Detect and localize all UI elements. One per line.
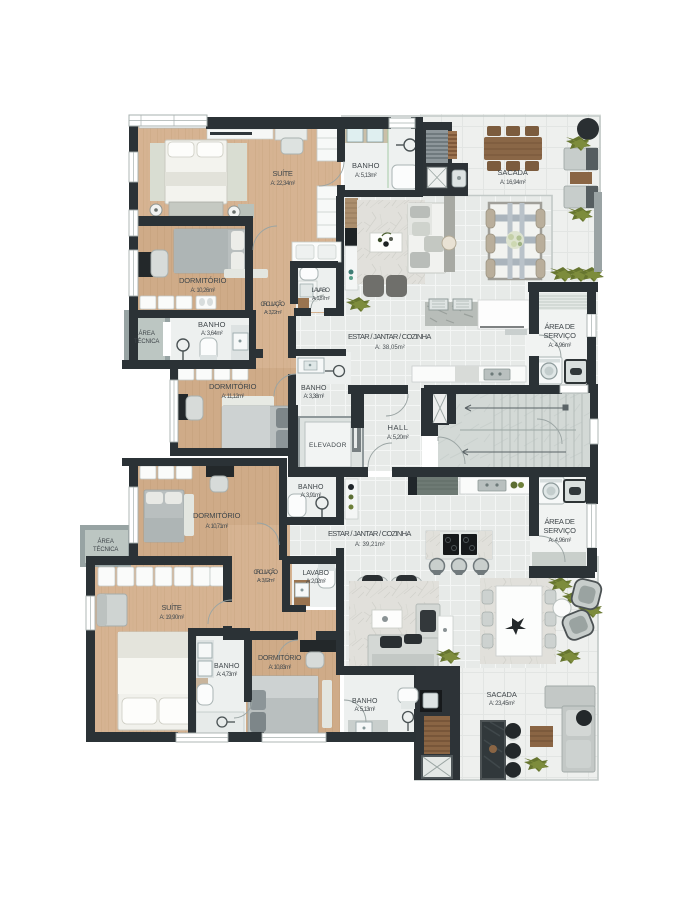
svg-text:A: 39,21m²: A: 39,21m² — [355, 542, 385, 548]
svg-text:A: 19,90m²: A: 19,90m² — [160, 615, 185, 621]
svg-text:SUÍTE: SUÍTE — [273, 169, 294, 178]
svg-text:A: 3,64m²: A: 3,64m² — [201, 331, 223, 337]
svg-text:A: 5,13m²: A: 5,13m² — [355, 707, 376, 713]
svg-text:BANHO: BANHO — [352, 161, 380, 170]
svg-text:A: 3,62m²: A: 3,62m² — [257, 578, 275, 584]
svg-text:CIRCULAÇÃO: CIRCULAÇÃO — [254, 569, 279, 576]
svg-text:SACADA: SACADA — [498, 168, 529, 177]
svg-text:TÉCNICA: TÉCNICA — [134, 338, 160, 345]
svg-text:ESTAR / JANTAR / COZINHA: ESTAR / JANTAR / COZINHA — [328, 529, 412, 538]
svg-text:BANHO: BANHO — [198, 320, 226, 329]
svg-text:A: 5,13m²: A: 5,13m² — [355, 173, 377, 179]
svg-text:HALL: HALL — [388, 423, 409, 432]
svg-text:A: 3,38m²: A: 3,38m² — [304, 394, 325, 400]
svg-text:BANHO: BANHO — [298, 484, 324, 491]
svg-text:DORMITÓRIO: DORMITÓRIO — [209, 382, 257, 391]
svg-text:DORMITÓRIO: DORMITÓRIO — [193, 511, 241, 520]
svg-text:A: 11,12m²: A: 11,12m² — [222, 394, 245, 400]
svg-text:DORMITÓRIO: DORMITÓRIO — [258, 653, 302, 662]
svg-text:TÉCNICA: TÉCNICA — [93, 546, 119, 553]
svg-text:SERVIÇO: SERVIÇO — [544, 331, 577, 340]
svg-text:A: 2,02m²: A: 2,02m² — [306, 579, 326, 585]
svg-text:ÁREA DE: ÁREA DE — [545, 322, 576, 331]
svg-text:A: 10,26m²: A: 10,26m² — [191, 288, 216, 294]
svg-text:A: 5,20m²: A: 5,20m² — [387, 435, 409, 441]
svg-text:A: 22,34m²: A: 22,34m² — [271, 181, 296, 187]
svg-text:ÁREA: ÁREA — [98, 538, 115, 545]
svg-text:LAVABO: LAVABO — [303, 570, 330, 577]
svg-text:A: 3,22m²: A: 3,22m² — [264, 310, 282, 316]
svg-text:A: 10,83m²: A: 10,83m² — [269, 665, 292, 671]
svg-text:A: 38,05m²: A: 38,05m² — [375, 345, 405, 351]
svg-text:BANHO: BANHO — [301, 385, 327, 392]
svg-text:SUÍTE: SUÍTE — [162, 603, 183, 612]
svg-text:A: 4,96m²: A: 4,96m² — [549, 538, 572, 544]
svg-text:ELEVADOR: ELEVADOR — [309, 442, 347, 449]
svg-text:A: 16,94m²: A: 16,94m² — [500, 180, 526, 186]
svg-text:LAVABO: LAVABO — [312, 288, 331, 294]
svg-text:A: 4,73m²: A: 4,73m² — [217, 672, 238, 678]
svg-text:BANHO: BANHO — [352, 698, 378, 705]
svg-text:A: 4,96m²: A: 4,96m² — [549, 343, 572, 349]
svg-text:ESTAR / JANTAR / COZINHA: ESTAR / JANTAR / COZINHA — [348, 332, 432, 341]
svg-text:BANHO: BANHO — [214, 663, 240, 670]
svg-text:ÁREA: ÁREA — [139, 330, 156, 337]
svg-text:A: 1,87m²: A: 1,87m² — [312, 296, 330, 302]
svg-text:A: 23,45m²: A: 23,45m² — [489, 701, 515, 707]
svg-text:SERVIÇO: SERVIÇO — [544, 526, 577, 535]
svg-text:DORMITÓRIO: DORMITÓRIO — [179, 276, 227, 285]
svg-text:CIRCULAÇÃO: CIRCULAÇÃO — [261, 301, 286, 308]
svg-text:SACADA: SACADA — [487, 690, 518, 699]
svg-text:A: 3,91m²: A: 3,91m² — [301, 493, 322, 499]
svg-text:A: 10,71m²: A: 10,71m² — [206, 524, 229, 530]
svg-text:ÁREA DE: ÁREA DE — [545, 517, 576, 526]
